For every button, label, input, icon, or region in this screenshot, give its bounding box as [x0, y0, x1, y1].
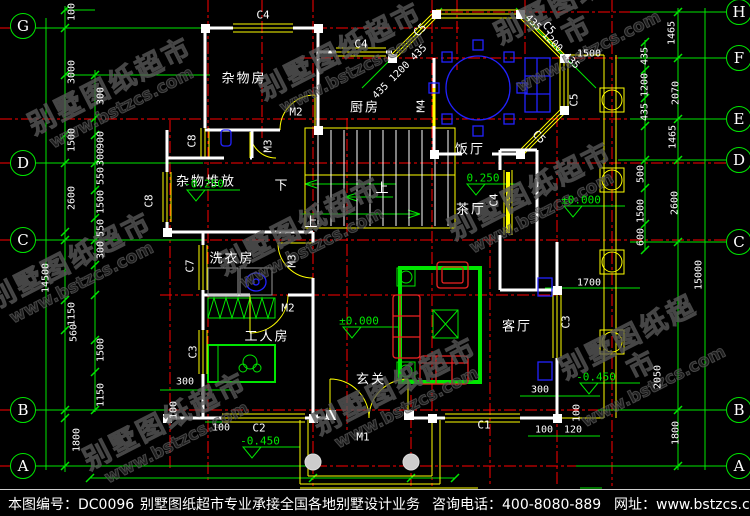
room-label: 客厅 [502, 316, 532, 335]
axis-bubble-right: C [726, 229, 750, 255]
room-label: 茶厅 [456, 199, 486, 218]
level-label: -0.450 [240, 435, 280, 448]
phone-number: 咨询电话：400-8080-889 [432, 494, 601, 514]
dim-label: 2600 [670, 191, 681, 215]
dim-label: 2050 [653, 365, 664, 389]
window-tag: C4 [256, 9, 269, 22]
dim-label: 3000 [67, 60, 78, 84]
dim-label: 15000 [694, 260, 705, 290]
window-tag: C7 [184, 259, 197, 272]
dim-label: 435 [640, 47, 651, 65]
room-label: 玄关 [356, 369, 386, 388]
dim-label: 100 [212, 423, 230, 434]
window-tag: C4 [488, 193, 501, 206]
dim-label: 1500 [67, 128, 78, 152]
website-address: 网址：www.bstzcs.com [614, 494, 750, 514]
dim-label: 300 [531, 385, 549, 396]
axis-bubble-right: A [726, 453, 750, 479]
walls-layer [167, 28, 557, 418]
dim-label: 300 [96, 148, 107, 166]
dim-label: 900 [96, 131, 107, 149]
dim-label: 14500 [41, 263, 52, 293]
axis-bubble-right: F [726, 45, 750, 71]
dim-label: 100 [169, 401, 180, 419]
axis-bubble-left: D [10, 150, 36, 176]
dim-label: 2600 [67, 186, 78, 210]
dim-label: 100 [535, 425, 553, 436]
dim-label: 300 [96, 87, 107, 105]
door-tag: M2 [281, 302, 294, 315]
dim-label: 100 [67, 3, 78, 21]
dim-label: 1800 [671, 421, 682, 445]
window-tag: C4 [354, 38, 367, 51]
dim-label: 560 [69, 324, 80, 342]
dim-label: 300 [96, 241, 107, 259]
title-bar: 本图编号：DC0096 别墅图纸超市专业承接全国各地别墅设计业务 咨询电话：40… [0, 489, 750, 516]
dim-label: 1465 [668, 125, 679, 149]
level-label: ±0.000 [561, 194, 601, 207]
door-tag: M3 [262, 139, 275, 152]
door-tag: M3 [286, 254, 299, 267]
dimension-lines [35, 6, 728, 488]
dim-label: 120 [564, 425, 582, 436]
dim-label: 500 [636, 165, 647, 183]
dim-label: 300 [176, 377, 194, 388]
level-label: -0.450 [576, 371, 616, 384]
dim-label: 2070 [671, 81, 682, 105]
cad-floorplan-screenshot: 别墅图纸超市www.bstzcs.com 别墅图纸超市www.bstzcs.co… [0, 0, 750, 516]
door-tag: M1 [356, 431, 369, 444]
window-tag: C1 [477, 419, 490, 432]
level-label: ±0.000 [339, 315, 379, 328]
room-label: 饭厅 [455, 139, 485, 158]
laundry-fixtures [208, 268, 272, 295]
stair-up-label: 上 [304, 212, 319, 231]
dim-label: 1800 [72, 428, 83, 452]
axis-bubble-left: C [10, 227, 36, 253]
dim-label: 435 [640, 103, 651, 121]
axis-bubble-right: H [726, 0, 750, 25]
dim-label: 550 [96, 219, 107, 237]
dim-label: 550 [96, 167, 107, 185]
room-label: 工人房 [244, 326, 289, 345]
window-tag: C8 [186, 134, 199, 147]
door-tag: M2 [289, 106, 302, 119]
axis-bubble-right: B [726, 397, 750, 423]
dim-label: 1500 [96, 338, 107, 362]
axis-bubble-right: E [726, 106, 750, 132]
window-tag: C3 [560, 315, 573, 328]
sheet-number: 本图编号：DC0096 [8, 494, 134, 514]
axis-bubble-left: B [10, 397, 36, 423]
level-label: 0.250 [466, 172, 499, 185]
dim-label: 1500 [636, 199, 647, 223]
window-tag: C2 [252, 422, 265, 435]
stair-up-label: 上 [375, 178, 390, 197]
window-tag: C8 [143, 194, 156, 207]
dim-label: 100 [572, 404, 583, 422]
level-label: -0.250 [184, 178, 224, 191]
window-tag: C5 [568, 93, 581, 106]
window-tag: C3 [187, 345, 200, 358]
dim-label: 600 [636, 228, 647, 246]
axis-bubble-left: G [10, 13, 36, 39]
dim-label: 1500 [577, 49, 601, 60]
company-slogan: 别墅图纸超市专业承接全国各地别墅设计业务 [140, 494, 420, 514]
door-tag: M4 [415, 99, 428, 112]
dim-label: 1700 [577, 278, 601, 289]
room-label: 杂物房 [221, 68, 266, 87]
axis-bubble-left: A [10, 453, 36, 479]
room-label: 洗衣房 [209, 248, 254, 267]
axis-bubble-right: D [726, 147, 750, 173]
dim-label: 1500 [96, 190, 107, 214]
porch-columns [305, 454, 419, 470]
dim-label: 1465 [667, 21, 678, 45]
stair-down-label: 下 [274, 175, 289, 194]
dim-label: 1150 [67, 302, 78, 326]
dim-label: 1150 [96, 383, 107, 407]
dim-label: 1200 [640, 73, 651, 97]
